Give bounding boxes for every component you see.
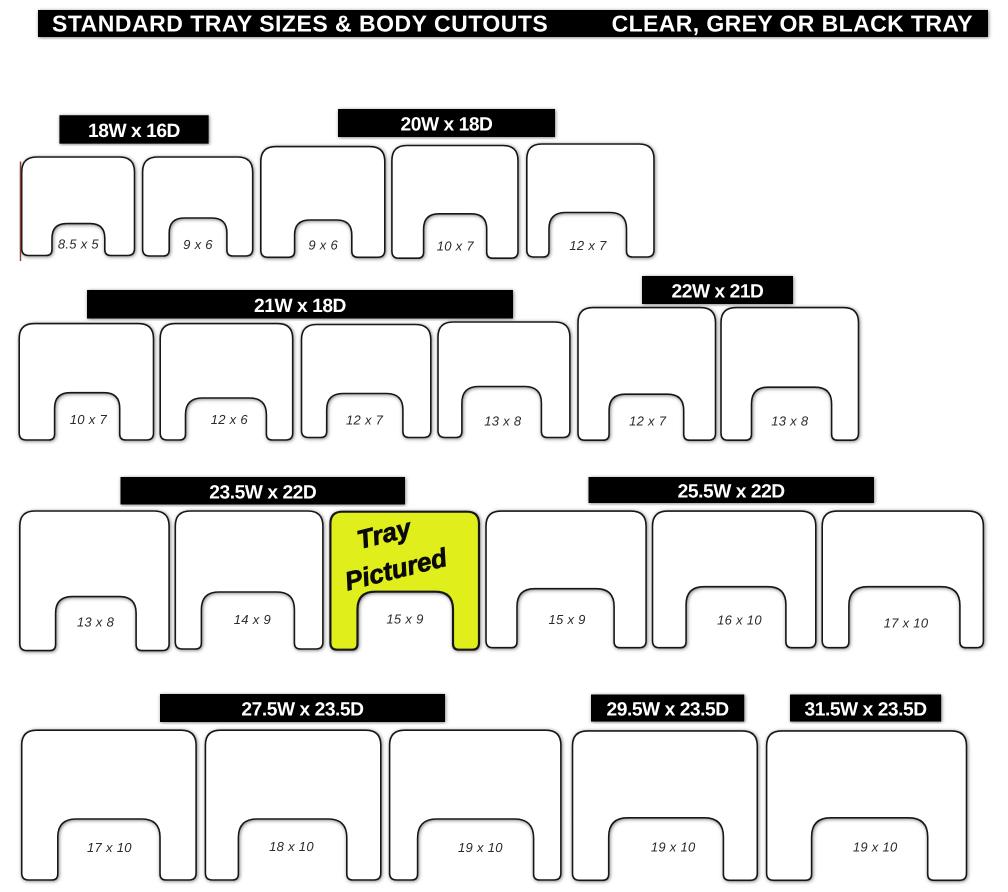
svg-text:14 x 9: 14 x 9	[234, 612, 271, 627]
svg-text:18W x 16D: 18W x 16D	[88, 121, 181, 142]
svg-text:16 x 10: 16 x 10	[717, 612, 762, 627]
svg-text:15 x 9: 15 x 9	[386, 612, 423, 627]
svg-text:10 x 7: 10 x 7	[437, 239, 475, 254]
svg-text:17 x 10: 17 x 10	[884, 616, 929, 631]
svg-text:CLEAR, GREY OR BLACK TRAY: CLEAR, GREY OR BLACK TRAY	[612, 11, 973, 37]
svg-text:25.5W x 22D: 25.5W x 22D	[678, 482, 786, 503]
svg-text:18 x 10: 18 x 10	[269, 839, 314, 854]
svg-text:21W x 18D: 21W x 18D	[254, 296, 347, 317]
svg-text:22W x 21D: 22W x 21D	[672, 282, 765, 303]
svg-text:9 x 6: 9 x 6	[308, 238, 338, 253]
svg-text:13 x 8: 13 x 8	[771, 414, 809, 429]
svg-text:23.5W x 22D: 23.5W x 22D	[209, 482, 317, 503]
svg-text:19 x 10: 19 x 10	[458, 840, 503, 855]
svg-text:29.5W x 23.5D: 29.5W x 23.5D	[607, 700, 730, 721]
svg-text:19 x 10: 19 x 10	[651, 839, 696, 854]
svg-text:13 x 8: 13 x 8	[77, 615, 115, 630]
svg-text:31.5W x 23.5D: 31.5W x 23.5D	[805, 700, 928, 721]
svg-text:15 x 9: 15 x 9	[548, 612, 585, 627]
svg-text:STANDARD TRAY SIZES & BODY CUT: STANDARD TRAY SIZES & BODY CUTOUTS	[52, 11, 548, 37]
svg-text:12 x 7: 12 x 7	[569, 238, 607, 253]
svg-text:17 x 10: 17 x 10	[87, 840, 132, 855]
svg-text:8.5 x 5: 8.5 x 5	[58, 237, 100, 252]
svg-text:12 x 7: 12 x 7	[346, 413, 384, 428]
svg-text:13 x 8: 13 x 8	[484, 413, 522, 428]
svg-text:20W x 18D: 20W x 18D	[401, 115, 494, 136]
svg-text:9 x 6: 9 x 6	[183, 237, 213, 252]
svg-text:12 x 7: 12 x 7	[629, 414, 667, 429]
svg-text:10 x 7: 10 x 7	[70, 412, 108, 427]
svg-text:12 x 6: 12 x 6	[211, 412, 249, 427]
svg-text:27.5W x 23.5D: 27.5W x 23.5D	[241, 700, 364, 721]
svg-text:19 x 10: 19 x 10	[853, 839, 898, 854]
